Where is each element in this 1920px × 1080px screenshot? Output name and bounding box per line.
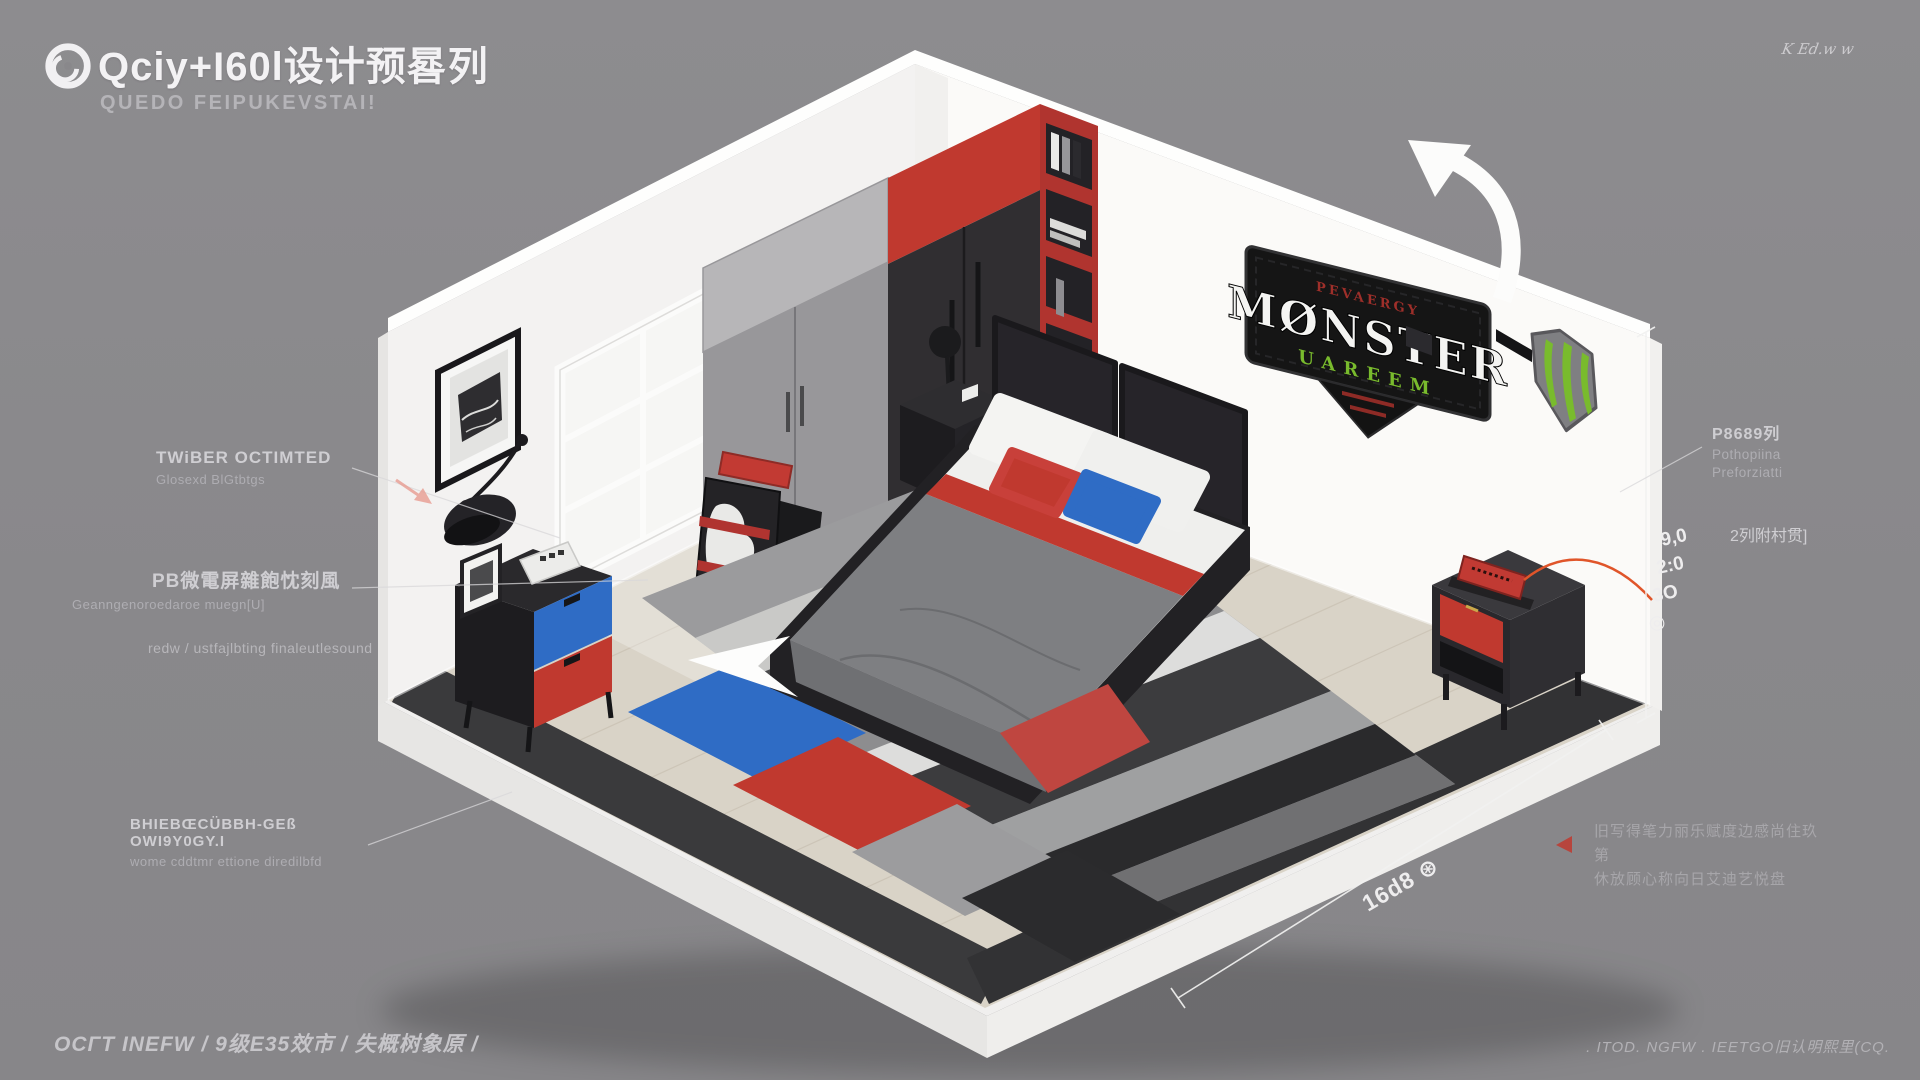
note-line-2: 休放顾心称向日艾迪艺悦盘 — [1594, 868, 1824, 892]
annotation-line3: Preforziatti — [1712, 465, 1902, 480]
annotation-sub: Geanngenoroedaroe muegn[U] — [72, 597, 372, 612]
note-line-1: 旧写得笔力丽乐赋度边感尚住玖第 — [1594, 820, 1824, 868]
annotation-sub: wome cddtmr ettione diredilbfd — [130, 854, 390, 869]
annotation-left-1: TWiBER OCTIMTED Glosexd BlGtbtgs — [156, 448, 396, 487]
annotation-line2: Pothopiina — [1712, 447, 1902, 462]
page-title: Qciy+I60l设计预晷列 — [98, 34, 489, 92]
isometric-room-render: PEVAERGY MØNSTER UAREEM — [0, 0, 1920, 1080]
svg-text:9,0: 9,0 — [1659, 525, 1689, 551]
swirl-logo-icon — [42, 40, 94, 92]
svg-text:3O: 3O — [1651, 581, 1680, 607]
bottom-right-note: 旧写得笔力丽乐赋度边感尚住玖第 休放顾心称向日艾迪艺悦盘 — [1594, 820, 1824, 892]
red-chevron-icon — [1556, 836, 1572, 853]
footer-left: OCΓT INEFW / 9级E35效市 / 失概树象原 / — [54, 1028, 478, 1058]
side-note: 2列附村贯] — [1730, 522, 1807, 546]
annotation-left-2b: redw / ustfajlbting finaleutlesound — [148, 640, 428, 656]
svg-text:2:0: 2:0 — [1655, 553, 1686, 579]
annotation-title: PB微電屏雜飽忱刻風 — [152, 566, 372, 593]
annotation-left-3: BHIEBŒCÜBBH-GEß OWI9Y0GY.I wome cddtmr e… — [130, 816, 390, 869]
annotation-right: P8689列 Pothopiina Preforziatti — [1712, 420, 1902, 480]
annotation-title: TWiBER OCTIMTED — [156, 448, 396, 468]
annotation-sub: Glosexd BlGtbtgs — [156, 472, 396, 487]
annotation-left-2: PB微電屏雜飽忱刻風 Geanngenoroedaroe muegn[U] — [72, 566, 372, 612]
footer-right: . ITOD. NGFW . IEETGO旧认明熙里(CQ. — [1400, 1036, 1890, 1057]
annotation-title: P8689列 — [1712, 420, 1902, 444]
design-presentation: PEVAERGY MØNSTER UAREEM — [0, 0, 1920, 1080]
signature-text: K Ed.w w — [1780, 40, 1913, 58]
annotation-title: BHIEBŒCÜBBH-GEß OWI9Y0GY.I — [130, 816, 390, 850]
svg-text:◎: ◎ — [1647, 611, 1668, 635]
page-subtitle: QUEDO FEIPUKEVSTAI! — [100, 92, 377, 115]
